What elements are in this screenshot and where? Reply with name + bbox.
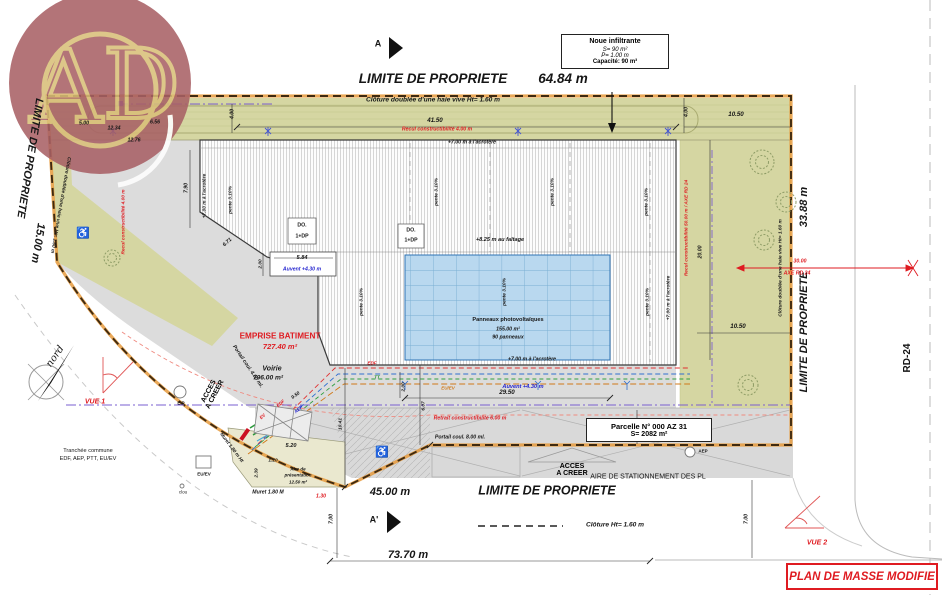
do-label: DO. (297, 223, 306, 228)
site-plan: A D LIMITE DE PROPRIETE 64.84 m Clôture … (0, 0, 942, 595)
fence-right-label: Clôture doublée d'une haie vive Ht= 1.60… (778, 219, 783, 317)
aep-manhole-icon (685, 447, 695, 457)
pente-label: pente 3.10% (502, 278, 507, 306)
clou-icon (180, 484, 184, 488)
boundary-bottom-label: LIMITE DE PROPRIETE (478, 484, 616, 497)
dim-4-00-b: 4.00 (684, 107, 689, 117)
parcel-infobox: Parcelle N° 000 AZ 31 S= 2082 m² (586, 418, 712, 442)
wheelchair-icon: ♿ (375, 446, 389, 459)
dim-2-39: 2.39 (254, 468, 259, 477)
dim-10-50-a: 10.50 (728, 112, 743, 119)
boundary-bottom-length-gate: 45.00 m (370, 487, 410, 499)
acrotere-bottom-label: +7.00 m à l'acrotère (508, 357, 556, 362)
pente-label: pente 3.10% (644, 188, 649, 216)
emprise-title: EMPRISE BATIMENT (240, 333, 321, 342)
dim-2-00-a: 2.00 (258, 259, 263, 268)
dim-6-56: 6.56 (150, 120, 160, 125)
dim-41-50: 41.50 (427, 118, 442, 125)
trench-line2: EDF, AEP, PTT, EU/EV (60, 457, 117, 463)
pente-label: pente 3.10% (645, 288, 650, 316)
title-block: PLAN DE MASSE MODIFIE (786, 563, 938, 590)
parcel-line1: Parcelle N° 000 AZ 31 (587, 422, 711, 431)
faitage-label: +8.25 m au faîtage (476, 238, 524, 244)
noue-capacity: Capacité: 90 m³ (562, 59, 668, 65)
euev-box-label: EU/EV (197, 473, 211, 478)
plan-title: PLAN DE MASSE MODIFIE (789, 571, 935, 583)
dim-10-50-b: 10.50 (730, 324, 745, 331)
aire-line2: présentation (284, 474, 311, 479)
section-a-prime-label: A' (370, 515, 379, 524)
dim-29-50: 29.50 (499, 390, 514, 397)
parking-label: AIRE DE STATIONNEMENT DES PL (590, 473, 706, 480)
dim-7-00-a: 7.00 (329, 514, 334, 524)
setback-right-label: Recul constructibilité 50.00 m / AXE RD … (684, 180, 689, 276)
vue1-label: VUE 1 (85, 398, 105, 405)
dim-12-76: 12.76 (128, 138, 141, 143)
fence-legend-label: Clôture Ht= 1.60 m (586, 523, 644, 530)
pente-label: pente 3.10% (550, 178, 555, 206)
do-label: DO. (406, 228, 415, 233)
pente-label: pente 3.10% (228, 186, 233, 214)
setback-top-label: Recul constructibilité 4.00 m (402, 127, 472, 132)
dim-4-00-a: 4.00 (230, 109, 235, 119)
aire-line3: 12.50 m² (289, 481, 307, 486)
dim-5-00: 5.00 (79, 121, 89, 126)
noue-infobox: Noue infiltrante S= 90 m² P= 1.00 m Capa… (561, 34, 669, 69)
boundary-right-label: LIMITE DE PROPRIETE (799, 271, 811, 392)
dp-label: 1+DP (295, 234, 308, 239)
clou-label: clou (179, 491, 187, 496)
section-a-prime-arrow-icon (387, 511, 401, 533)
dim-2-00-b: 2.00 (401, 382, 406, 391)
panels-count: 90 panneaux (492, 335, 523, 340)
dim-1-20: 1.20 (268, 458, 277, 463)
acrotere-left-label: +7.00 m à l'acrotère (202, 174, 207, 218)
dim-12-34: 12.34 (108, 126, 121, 131)
section-a-arrow-icon (389, 37, 403, 59)
panels-title: Panneaux photovoltaïques (472, 318, 543, 324)
emprise-area: 727.40 m² (263, 343, 297, 351)
fence-top-label: Clôture doublée d'une haie vive Ht= 1.60… (366, 98, 500, 105)
euev-line-label: EU/EV (441, 387, 455, 392)
dim-5-20: 5.20 (286, 444, 297, 450)
logo-watermark: A D (9, 0, 191, 185)
setback-left-label: Recul constructibilité 4.00 m (121, 189, 126, 254)
trench-line1: Tranchée commune (63, 449, 113, 455)
axis-dim-label: 30.00 (794, 259, 807, 264)
auvent-top-label: Auvent +4.30 m (283, 267, 321, 272)
aire-line1: Aire de (290, 468, 305, 473)
section-a-label: A (375, 39, 382, 48)
pente-label: pente 3.10% (434, 178, 439, 206)
dim-7-00-b: 7.00 (744, 514, 749, 524)
voirie-label: Voirie (262, 365, 281, 372)
portail-bottom-label: Portail coul. 8.00 ml. (435, 435, 485, 440)
tt-line-label: TT (374, 376, 380, 381)
parcel-line2: S= 2082 m² (587, 431, 711, 438)
boundary-right-length: 33.88 m (799, 187, 811, 227)
dim-6-07: 6.07 (421, 401, 426, 410)
dim-5-84: 5.84 (297, 256, 308, 262)
noue-title: Noue infiltrante (562, 38, 668, 47)
dim-10-41: 10.41 (338, 418, 343, 430)
acrotere-right-label: +7.00 m à l'acrotère (666, 276, 671, 320)
pente-label: pente 3.10% (359, 288, 364, 316)
dim-20-00: 20.00 (698, 246, 703, 259)
aep-parking-label: AEP (698, 450, 707, 455)
photovoltaic-panels (405, 255, 610, 360)
dim-1-30: 1.30 (316, 494, 326, 499)
vue2-label: VUE 2 (807, 539, 827, 546)
muret-bottom-label: Muret 1.80 M (252, 490, 283, 495)
axis-name-label: AXE RD 24 (784, 271, 811, 276)
dp-label: 1+DP (404, 238, 417, 243)
acrotere-top-label: +7.00 m à l'acrotère (448, 140, 496, 145)
wheelchair-icon: ♿ (76, 227, 90, 240)
setback-bottom-label: Retrait constructibilité 6.00 m (434, 416, 507, 421)
dim-7-90: 7.90 (184, 183, 189, 193)
road-name-label: RD-24 (903, 344, 914, 373)
edf-line-label: EDF (368, 362, 377, 367)
ep-label: E.P (177, 402, 184, 407)
boundary-top-label: LIMITE DE PROPRIETE (359, 72, 508, 86)
euev-box-icon (196, 456, 211, 468)
boundary-bottom-length-total: 73.70 m (388, 550, 428, 562)
ep-manhole-icon (174, 386, 186, 398)
acces-2-label: ACCES A CREER (556, 463, 587, 477)
boundary-top-length: 64.84 m (538, 72, 588, 86)
panels-area: 155.00 m² (496, 327, 520, 332)
